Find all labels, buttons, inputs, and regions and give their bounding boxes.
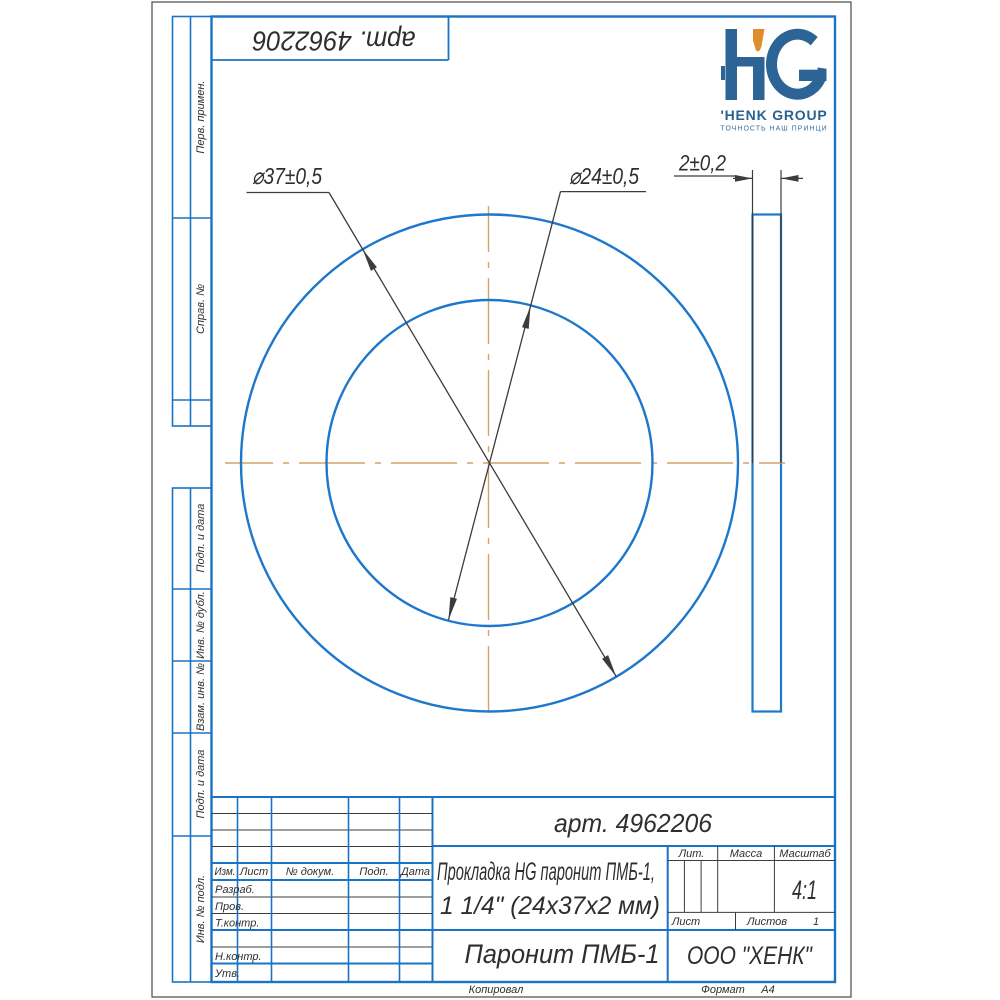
svg-text:Масштаб: Масштаб bbox=[779, 848, 831, 860]
svg-text:Масса: Масса bbox=[730, 848, 763, 860]
svg-text:арт. 4962206: арт. 4962206 bbox=[252, 26, 415, 57]
svg-text:Листов: Листов bbox=[746, 916, 787, 928]
svg-text:Справ. №: Справ. № bbox=[195, 284, 207, 334]
svg-text:Инв. № подл.: Инв. № подл. bbox=[195, 875, 207, 943]
svg-text:Подп.: Подп. bbox=[359, 866, 388, 878]
svg-text:А4: А4 bbox=[760, 984, 774, 996]
svg-text:Лист: Лист bbox=[671, 916, 700, 928]
svg-text:Подп. и дата: Подп. и дата bbox=[195, 750, 207, 819]
svg-text:Формат: Формат bbox=[701, 984, 745, 996]
svg-text:4:1: 4:1 bbox=[792, 875, 817, 905]
svg-text:Лист: Лист bbox=[239, 866, 268, 878]
svg-text:Перв. примен.: Перв. примен. bbox=[195, 80, 207, 153]
svg-text:ООО "ХЕНК": ООО "ХЕНК" bbox=[687, 942, 813, 970]
svg-text:№ докум.: № докум. bbox=[286, 866, 334, 878]
svg-text:Инв. № дубл.: Инв. № дубл. bbox=[195, 591, 207, 659]
svg-text:Т.контр.: Т.контр. bbox=[215, 918, 259, 930]
svg-text:Пров.: Пров. bbox=[215, 901, 244, 913]
svg-text:⌀37±0,5: ⌀37±0,5 bbox=[252, 163, 322, 189]
svg-text:арт. 4962206: арт. 4962206 bbox=[554, 808, 713, 838]
svg-text:Прокладка HG паронит ПМБ-1,: Прокладка HG паронит ПМБ-1, bbox=[437, 858, 655, 886]
svg-text:Копировал: Копировал bbox=[469, 984, 524, 996]
svg-text:Утв.: Утв. bbox=[214, 968, 240, 980]
svg-text:Паронит ПМБ-1: Паронит ПМБ-1 bbox=[465, 939, 660, 969]
svg-text:'HENK GROUP: 'HENK GROUP bbox=[721, 107, 828, 123]
svg-text:Изм.: Изм. bbox=[215, 866, 236, 878]
svg-text:1: 1 bbox=[813, 916, 819, 928]
svg-text:Подп. и дата: Подп. и дата bbox=[195, 504, 207, 573]
svg-text:Разраб.: Разраб. bbox=[215, 884, 255, 896]
svg-text:Дата: Дата bbox=[399, 866, 430, 878]
svg-text:1 1/4" (24х37х2 мм): 1 1/4" (24х37х2 мм) bbox=[440, 892, 660, 920]
svg-text:Н.контр.: Н.контр. bbox=[215, 951, 262, 963]
svg-text:Лит.: Лит. bbox=[678, 848, 705, 860]
svg-text:⌀24±0,5: ⌀24±0,5 bbox=[569, 163, 639, 189]
svg-text:2±0,2: 2±0,2 bbox=[678, 151, 726, 176]
svg-text:Взам. инв. №: Взам. инв. № bbox=[195, 663, 207, 731]
svg-text:ТОЧНОСТЬ НАШ ПРИНЦИП: ТОЧНОСТЬ НАШ ПРИНЦИП bbox=[721, 126, 834, 133]
